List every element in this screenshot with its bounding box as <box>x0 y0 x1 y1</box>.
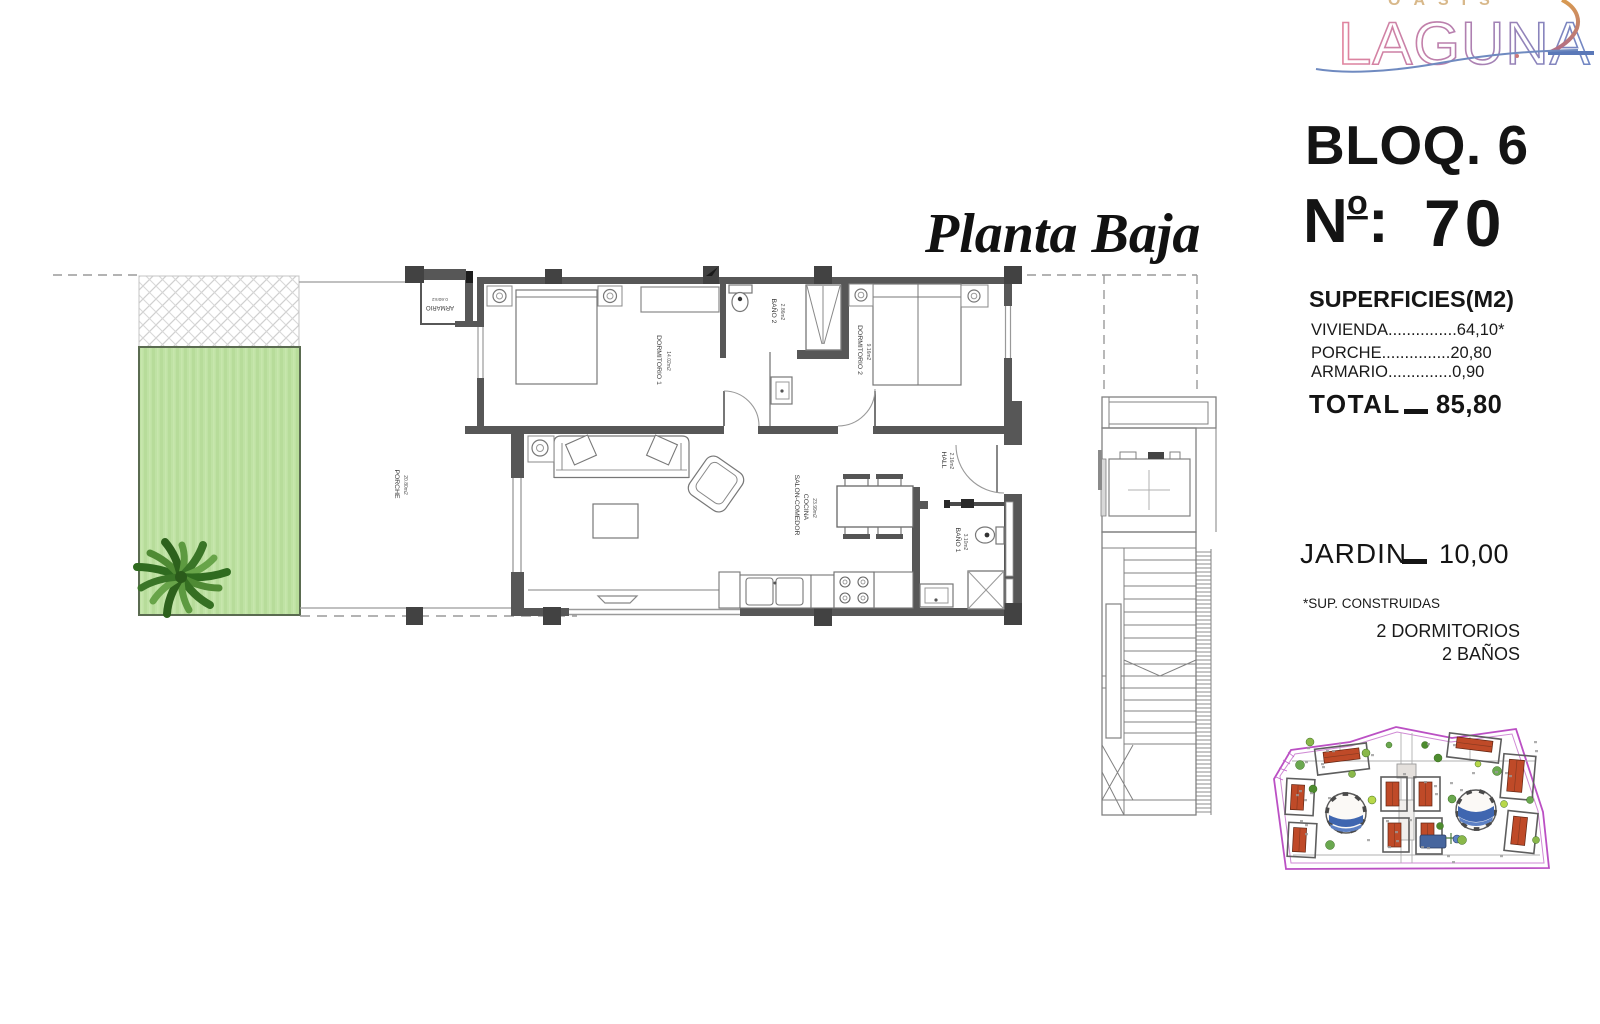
svg-text:9.16m2: 9.16m2 <box>865 344 871 361</box>
svg-text:VIVIENDA...............64,10*: VIVIENDA...............64,10* <box>1311 321 1505 339</box>
svg-text:TOTAL: TOTAL <box>1309 389 1401 419</box>
svg-text:3.10m2: 3.10m2 <box>962 534 968 551</box>
svg-text:2 DORMITORIOS: 2 DORMITORIOS <box>1376 621 1520 641</box>
svg-text:85,80: 85,80 <box>1436 391 1502 419</box>
svg-text:PORCHE: PORCHE <box>393 469 400 499</box>
svg-text:BAÑO 2: BAÑO 2 <box>770 299 779 324</box>
svg-text:23.99m2: 23.99m2 <box>811 498 817 518</box>
svg-text:Planta Baja: Planta Baja <box>924 203 1200 265</box>
svg-text:PORCHE...............20,80: PORCHE...............20,80 <box>1311 344 1492 362</box>
svg-text:SALON-COMEDOR: SALON-COMEDOR <box>793 475 800 536</box>
svg-text:20.80m2: 20.80m2 <box>402 475 408 495</box>
svg-text:N: N <box>1303 187 1348 256</box>
svg-text:ARMARIO: ARMARIO <box>426 304 454 310</box>
svg-text:LAGUNA: LAGUNA <box>1338 10 1591 77</box>
svg-text:2.86m2: 2.86m2 <box>779 304 785 321</box>
svg-text:DORMITORIO 2: DORMITORIO 2 <box>856 325 863 375</box>
svg-text:70: 70 <box>1424 186 1505 260</box>
svg-text:0.60m2: 0.60m2 <box>432 296 448 302</box>
svg-text:10,00: 10,00 <box>1439 539 1509 569</box>
svg-text:2.16m2: 2.16m2 <box>948 453 954 470</box>
svg-text:JARDIN: JARDIN <box>1300 538 1407 569</box>
svg-text:BAÑO 1: BAÑO 1 <box>954 528 963 553</box>
svg-text:ARMARIO..............0,90: ARMARIO..............0,90 <box>1311 363 1484 381</box>
svg-text:OASIS: OASIS <box>1388 0 1503 9</box>
svg-text:COCINA: COCINA <box>802 494 809 521</box>
svg-text:HALL: HALL <box>940 451 947 468</box>
svg-text:2 BAÑOS: 2 BAÑOS <box>1442 643 1520 664</box>
svg-text:*SUP. CONSTRUIDAS: *SUP. CONSTRUIDAS <box>1303 596 1440 611</box>
svg-text::: : <box>1368 187 1389 256</box>
svg-text:o: o <box>1347 184 1368 222</box>
svg-text:DORMITORIO 1: DORMITORIO 1 <box>655 335 662 385</box>
svg-text:14.02m2: 14.02m2 <box>665 351 671 371</box>
svg-text:SUPERFICIES(M2): SUPERFICIES(M2) <box>1309 286 1514 312</box>
svg-text:BLOQ. 6: BLOQ. 6 <box>1305 114 1529 176</box>
